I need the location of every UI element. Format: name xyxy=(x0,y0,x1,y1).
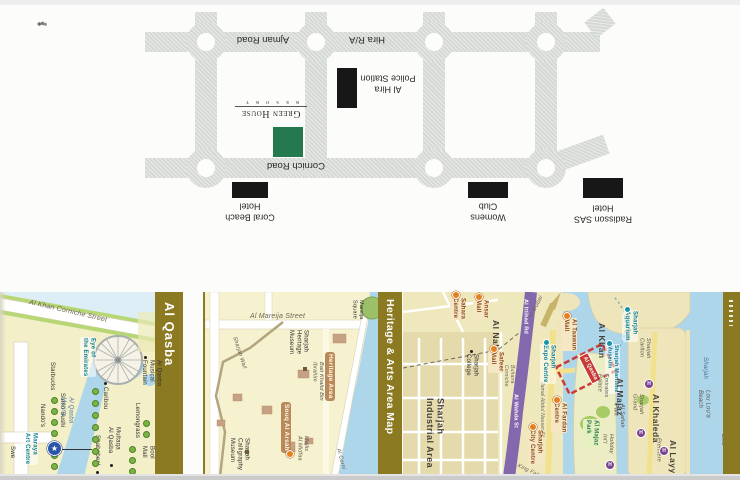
page-corner-mark xyxy=(36,21,47,27)
al-qasba-title-bar: Al Qasba xyxy=(155,292,183,477)
sharjah-overview-map-panel xyxy=(403,292,723,477)
roundabout xyxy=(526,22,566,62)
womens-club-label: Womens Club xyxy=(455,200,521,223)
green-house-resort-logo: Green House R E S O R T xyxy=(225,100,317,119)
cornich-road-label: Cornich Road xyxy=(246,159,346,171)
heritage-title: Heritage & Arts Area Map xyxy=(384,299,396,434)
overview-map-graphics xyxy=(403,292,723,477)
police-station-building xyxy=(337,68,357,108)
green-house-resort-location-map: Ajman Road Hira R/A Cornich Road Al Hira… xyxy=(0,0,740,290)
illegible-bar-text xyxy=(729,300,733,326)
radisson-sas-hotel-building xyxy=(583,178,623,198)
al-qasba-map-panel xyxy=(0,292,155,477)
heritage-title-bar: Heritage & Arts Area Map xyxy=(378,292,402,477)
ferris-wheel-icon xyxy=(94,336,142,384)
al-hira-police-station-label: Al Hira Police Station xyxy=(356,72,420,95)
al-qasba-map-graphics xyxy=(0,292,155,477)
logo-subtitle: R E S O R T xyxy=(235,100,307,107)
heritage-map-graphics xyxy=(205,292,379,477)
coral-beach-hotel-building xyxy=(232,182,268,198)
heritage-area-map-panel xyxy=(203,292,379,477)
coral-beach-hotel-label: Coral Beach Hotel xyxy=(214,200,286,223)
roundabout xyxy=(526,148,566,188)
roundabout xyxy=(186,148,226,188)
ajman-road-label: Ajman Road xyxy=(218,33,308,45)
right-edge-title-bar xyxy=(723,292,740,477)
sharjah-city-map-strip: Al Qasba Heritage & xyxy=(0,292,740,477)
scanned-map-page: Ajman Road Hira R/A Cornich Road Al Hira… xyxy=(0,0,740,480)
scan-edge-bottom xyxy=(0,476,740,480)
logo-title: Green House xyxy=(225,108,317,119)
roundabout xyxy=(414,148,454,188)
roundabout xyxy=(414,22,454,62)
green-house-resort-building xyxy=(273,127,303,157)
scan-shadow xyxy=(0,292,6,477)
womens-club-building xyxy=(468,182,508,198)
hira-ra-label: Hira R/A xyxy=(338,33,396,45)
radisson-sas-hotel-label: Radisson SAS Hotel xyxy=(564,202,642,225)
al-qasba-title: Al Qasba xyxy=(162,302,177,366)
